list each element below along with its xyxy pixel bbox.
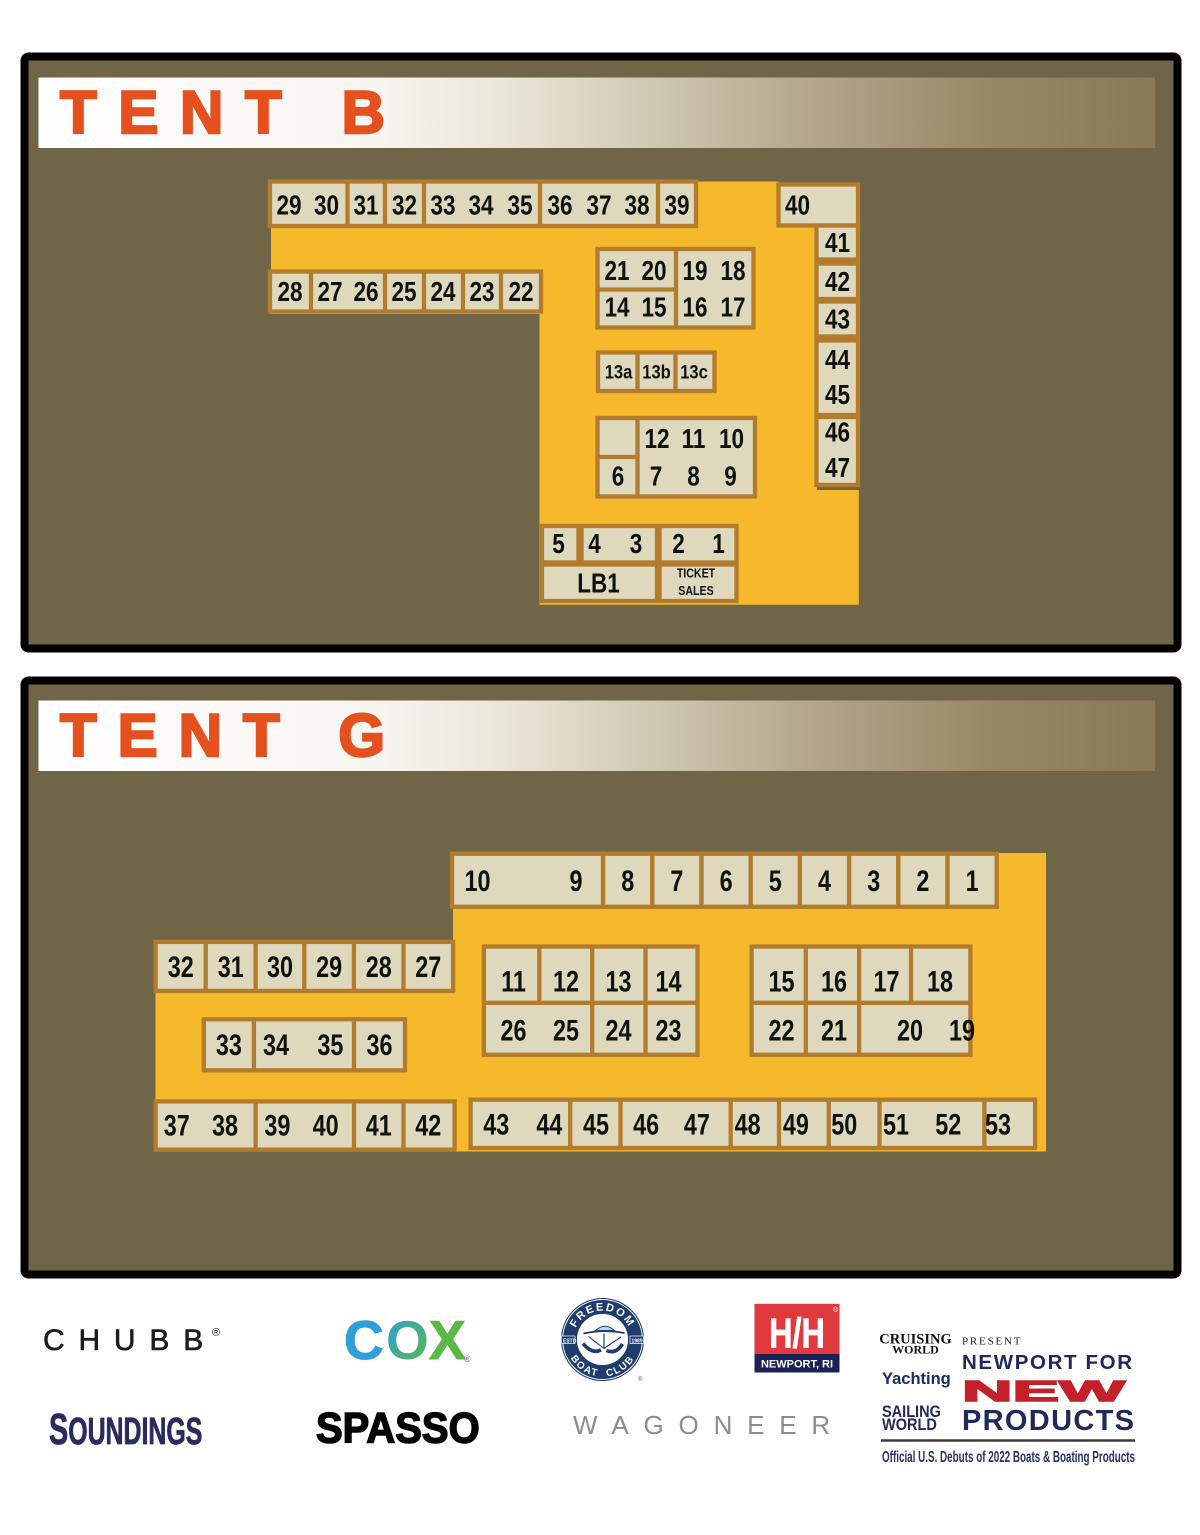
svg-text:45: 45 [583,1108,609,1141]
svg-text:2: 2 [916,864,929,897]
svg-text:46: 46 [633,1108,659,1141]
svg-text:SPASSO: SPASSO [316,1403,480,1452]
svg-text:28: 28 [366,950,392,983]
svg-text:1989: 1989 [632,1338,643,1344]
svg-text:18: 18 [927,965,953,998]
svg-text:22: 22 [768,1014,794,1047]
svg-text:PRESENT: PRESENT [962,1336,1022,1348]
svg-text:3: 3 [630,529,643,560]
svg-text:52: 52 [935,1108,961,1141]
svg-text:41: 41 [366,1109,392,1142]
svg-text:42: 42 [825,267,850,298]
svg-text:32: 32 [392,190,417,221]
svg-text:53: 53 [985,1108,1011,1141]
svg-text:7: 7 [670,864,683,897]
svg-text:19: 19 [949,1014,975,1047]
svg-text:21: 21 [821,1014,847,1047]
svg-text:37: 37 [164,1109,190,1142]
svg-text:23: 23 [469,277,494,308]
svg-text:16: 16 [682,292,707,323]
svg-text:®: ® [638,1376,643,1383]
svg-text:6: 6 [720,864,733,897]
svg-text:21: 21 [604,256,629,287]
svg-text:24: 24 [430,277,455,308]
svg-text:15: 15 [641,292,666,323]
svg-text:CHUBB: CHUBB [43,1324,217,1357]
svg-text:ESTD: ESTD [563,1338,577,1344]
svg-text:50: 50 [831,1108,857,1141]
svg-text:7: 7 [650,461,663,492]
svg-text:36: 36 [366,1028,392,1061]
svg-text:27: 27 [415,950,441,983]
svg-text:®: ® [833,1306,839,1314]
svg-text:12: 12 [553,965,579,998]
svg-text:30: 30 [314,190,339,221]
svg-text:48: 48 [735,1108,761,1141]
svg-text:TICKET: TICKET [677,567,715,581]
svg-text:14: 14 [604,292,629,323]
svg-text:9: 9 [724,461,737,492]
svg-text:43: 43 [825,304,850,335]
svg-text:WAGONEER: WAGONEER [573,1410,845,1440]
svg-text:35: 35 [317,1028,343,1061]
svg-text:NEWPORT FOR: NEWPORT FOR [962,1351,1132,1374]
svg-text:33: 33 [430,190,455,221]
svg-text:O: O [386,1309,427,1371]
svg-text:30: 30 [267,950,293,983]
svg-text:C: C [344,1309,383,1371]
svg-text:Yachting: Yachting [882,1370,951,1388]
svg-text:3: 3 [867,864,880,897]
svg-text:8: 8 [621,864,634,897]
svg-text:20: 20 [641,256,666,287]
svg-text:14: 14 [655,965,681,998]
svg-text:1: 1 [712,529,725,560]
svg-text:11: 11 [501,965,526,998]
svg-text:25: 25 [391,277,416,308]
svg-text:23: 23 [655,1014,681,1047]
svg-text:13b: 13b [642,361,671,383]
svg-text:37: 37 [586,190,611,221]
svg-text:11: 11 [682,424,706,455]
svg-text:39: 39 [264,1109,290,1142]
svg-text:16: 16 [821,965,847,998]
svg-text:4: 4 [818,864,831,897]
svg-text:.: . [456,1330,463,1366]
svg-text:2: 2 [672,529,685,560]
svg-text:18: 18 [720,256,745,287]
svg-text:41: 41 [825,228,850,259]
svg-text:45: 45 [825,380,850,411]
svg-text:5: 5 [552,529,565,560]
svg-text:19: 19 [682,256,707,287]
svg-text:44: 44 [536,1108,562,1141]
svg-text:®: ® [212,1327,220,1339]
svg-text:47: 47 [825,453,850,484]
svg-text:4: 4 [588,529,601,560]
svg-text:38: 38 [212,1109,238,1142]
svg-text:Official U.S. Debuts of 2022 B: Official U.S. Debuts of 2022 Boats & Boa… [882,1449,1135,1466]
svg-text:15: 15 [768,965,794,998]
svg-text:9: 9 [569,864,582,897]
svg-text:13a: 13a [605,361,633,383]
svg-text:6: 6 [612,461,625,492]
svg-text:46: 46 [825,417,850,448]
svg-text:1: 1 [966,864,979,897]
svg-text:5: 5 [769,864,782,897]
svg-text:WORLD: WORLD [882,1416,937,1434]
svg-text:49: 49 [783,1108,809,1141]
svg-text:39: 39 [664,190,689,221]
svg-text:34: 34 [263,1028,289,1061]
svg-text:47: 47 [684,1108,710,1141]
svg-text:12: 12 [644,424,669,455]
svg-text:36: 36 [547,190,572,221]
svg-text:10: 10 [464,864,490,897]
svg-text:8: 8 [687,461,700,492]
svg-text:31: 31 [218,950,244,983]
svg-text:10: 10 [719,424,744,455]
svg-text:29: 29 [316,950,342,983]
svg-text:51: 51 [883,1108,909,1141]
svg-text:®: ® [464,1354,471,1364]
svg-text:SALES: SALES [678,584,714,598]
svg-text:20: 20 [897,1014,923,1047]
svg-text:H/H: H/H [769,1309,825,1356]
svg-text:NEW: NEW [962,1376,1126,1408]
svg-text:SOUNDINGS: SOUNDINGS [49,1404,202,1454]
svg-text:13: 13 [605,965,631,998]
svg-text:17: 17 [873,965,899,998]
svg-text:34: 34 [468,190,493,221]
svg-text:40: 40 [785,190,810,221]
svg-text:27: 27 [317,277,342,308]
svg-text:13c: 13c [680,361,708,383]
svg-text:PRODUCTS: PRODUCTS [962,1405,1134,1437]
svg-text:NEWPORT, RI: NEWPORT, RI [761,1359,833,1371]
svg-text:43: 43 [483,1108,509,1141]
svg-text:26: 26 [500,1014,526,1047]
svg-text:29: 29 [276,190,301,221]
svg-text:WORLD: WORLD [892,1343,939,1357]
svg-text:42: 42 [415,1109,441,1142]
svg-text:32: 32 [168,950,194,983]
svg-text:28: 28 [277,277,302,308]
svg-text:26: 26 [353,277,378,308]
svg-text:17: 17 [720,292,745,323]
svg-text:24: 24 [605,1014,631,1047]
svg-text:22: 22 [508,277,533,308]
svg-text:38: 38 [624,190,649,221]
svg-text:40: 40 [313,1109,339,1142]
svg-text:31: 31 [353,190,378,221]
svg-text:LB1: LB1 [577,568,620,599]
svg-text:25: 25 [553,1014,579,1047]
svg-text:44: 44 [825,345,850,376]
svg-text:33: 33 [216,1028,242,1061]
svg-text:35: 35 [507,190,532,221]
